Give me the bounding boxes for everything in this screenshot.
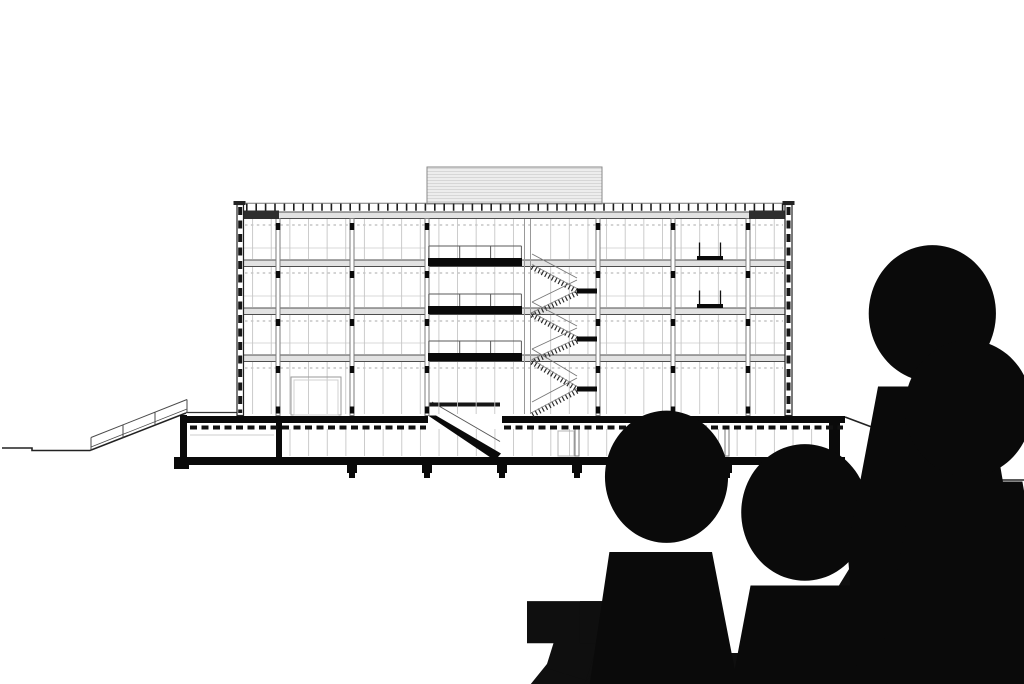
column-connector <box>350 319 354 326</box>
entry-ramp-railing <box>91 400 187 451</box>
footing <box>572 465 582 473</box>
column-connector <box>350 407 354 414</box>
column-connector <box>746 366 750 373</box>
column-connector <box>596 271 600 278</box>
column-connector <box>596 319 600 326</box>
stair-landing <box>577 337 597 342</box>
column <box>596 219 600 416</box>
ground-deck <box>184 416 845 428</box>
column-connector <box>276 366 280 373</box>
garage-column <box>575 429 579 456</box>
table-level3 <box>697 304 723 308</box>
column-connector <box>425 271 429 278</box>
footing <box>347 465 357 473</box>
column <box>671 219 675 416</box>
column-connector <box>350 223 354 230</box>
stair-stringer <box>532 265 577 289</box>
column-connector <box>596 366 600 373</box>
deck-slab-left <box>184 416 428 423</box>
column-connector <box>276 319 280 326</box>
column <box>746 219 750 416</box>
ground-floor-door-inner <box>294 380 338 415</box>
atrium-slab <box>428 353 522 361</box>
stair-flight-steps <box>532 391 577 415</box>
column-connector <box>350 271 354 278</box>
footing-pad <box>499 473 505 478</box>
column-connector <box>671 223 675 230</box>
column-connector <box>350 366 354 373</box>
drawing-canvas <box>0 0 1024 684</box>
basement-glazing-mullions <box>290 429 812 456</box>
floor-slab-bands <box>243 212 785 362</box>
column-connector <box>276 223 280 230</box>
column-connector <box>746 407 750 414</box>
column <box>350 219 354 416</box>
garage-column <box>725 429 729 456</box>
right-parapet-cap <box>783 201 795 205</box>
stair-flight-steps <box>532 315 577 339</box>
footing <box>497 465 507 473</box>
ground-line-left <box>2 413 186 451</box>
roof-canopy-right <box>749 211 785 220</box>
left-parapet-cap <box>234 201 246 205</box>
stair-shaft-walls <box>525 219 531 414</box>
table-level4 <box>697 256 723 260</box>
roof-penthouse <box>427 167 602 204</box>
atrium-slabs-and-guardrails <box>428 246 522 361</box>
stair-handrail <box>532 378 577 402</box>
column-connector <box>746 223 750 230</box>
stair-stringer <box>532 360 577 387</box>
column-connector <box>596 407 600 414</box>
column-connector <box>276 407 280 414</box>
column-connector <box>671 271 675 278</box>
footing-pad <box>349 473 355 478</box>
atrium-slab <box>428 306 522 314</box>
stair-flight-steps <box>532 267 577 291</box>
basement-door <box>558 431 574 456</box>
switchback-stair <box>532 254 597 415</box>
column-connector <box>425 319 429 326</box>
furniture-tables <box>697 243 723 309</box>
column-connector <box>671 366 675 373</box>
section-drawing <box>0 0 1024 684</box>
railing-bottom-rail <box>91 409 187 447</box>
stair-handrail <box>532 349 577 376</box>
column-connector <box>425 366 429 373</box>
column-connector <box>596 223 600 230</box>
footing-pad <box>424 473 430 478</box>
footing <box>422 465 432 473</box>
column-connector <box>746 319 750 326</box>
stair-flight-steps <box>532 362 577 389</box>
column-connector <box>671 319 675 326</box>
column-connector <box>276 271 280 278</box>
column-connector <box>425 223 429 230</box>
column <box>276 219 280 416</box>
stair-stringer <box>532 313 577 337</box>
floor-slab <box>243 212 785 219</box>
stair-stringer <box>532 389 577 413</box>
footing-pad <box>574 473 580 478</box>
roof-canopy-left <box>243 211 279 220</box>
stair-landing <box>577 289 597 294</box>
column-connector <box>425 407 429 414</box>
foundation-slab <box>176 457 845 465</box>
basement <box>174 415 846 478</box>
stair-landing <box>577 387 597 392</box>
column-connector <box>746 271 750 278</box>
atrium-slab <box>428 258 522 266</box>
ground-floor-door <box>291 377 341 415</box>
